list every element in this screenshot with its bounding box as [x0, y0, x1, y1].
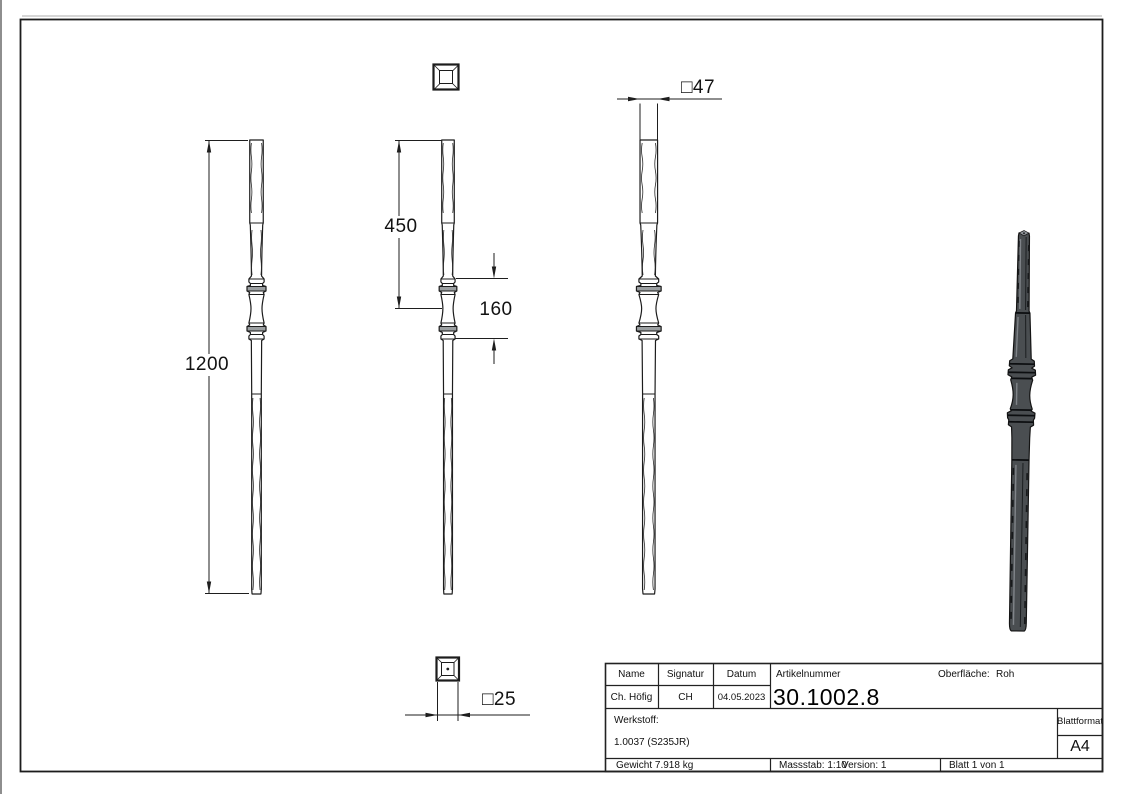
top-view-chamfer-lines	[435, 66, 459, 90]
oberflaeche-value: Roh	[996, 669, 1014, 680]
blatt-value: Blatt 1 von 1	[949, 760, 1005, 771]
arrow-down	[397, 297, 401, 309]
bottom-view-center-dot	[446, 668, 449, 671]
arrow-down	[207, 582, 211, 594]
titleblock-datum-value: 04.05.2023	[713, 685, 770, 709]
front-view-middle	[439, 140, 457, 594]
blattformat-value: A4	[1057, 735, 1103, 758]
iso-view-3d	[1004, 230, 1038, 631]
artikelnummer-value: 30.1002.8	[773, 684, 880, 711]
version-value: Version: 1	[842, 760, 886, 771]
titleblock-name-label: Name	[605, 663, 658, 685]
titleblock-name-value: Ch. Höfig	[605, 685, 658, 709]
arrow-right	[628, 97, 640, 101]
front-view-left	[247, 140, 266, 594]
oberflaeche-label: Oberfläche:	[938, 669, 990, 680]
massstab-value: Massstab: 1:10	[779, 760, 847, 771]
drawing-sheet: 1200 450 160 □47 □25 Name Signatur Datum…	[0, 0, 1123, 794]
dimension-47	[617, 97, 722, 140]
titleblock-datum-label: Datum	[713, 663, 770, 685]
blattformat-label: Blattformat	[1057, 708, 1103, 735]
arrow-left	[458, 713, 470, 717]
arrow-down	[492, 267, 496, 279]
titleblock-signatur-value: CH	[658, 685, 713, 709]
dim-label-square-47: □47	[681, 77, 715, 99]
arrow-right	[426, 713, 438, 717]
arrow-up	[207, 141, 211, 153]
arrow-up	[492, 339, 496, 351]
gewicht-value: Gewicht 7.918 kg	[616, 760, 693, 771]
arrow-up	[397, 141, 401, 153]
artikelnummer-label: Artikelnummer	[776, 669, 840, 680]
dim-label-160: 160	[479, 299, 512, 321]
top-end-view	[434, 65, 459, 90]
titleblock-signatur-label: Signatur	[658, 663, 713, 685]
top-view-inner-square	[440, 71, 453, 84]
front-view-right	[636, 140, 661, 594]
arrow-left	[658, 97, 670, 101]
dim-label-square-25: □25	[482, 689, 516, 711]
dim-label-450: 450	[382, 216, 419, 238]
drawing-frame	[21, 20, 1103, 772]
dim-label-1200: 1200	[183, 354, 231, 376]
window-left-edge	[0, 0, 2, 794]
werkstoff-label: Werkstoff:	[614, 715, 659, 726]
werkstoff-value: 1.0037 (S235JR)	[614, 737, 690, 748]
bottom-end-view	[437, 658, 460, 681]
